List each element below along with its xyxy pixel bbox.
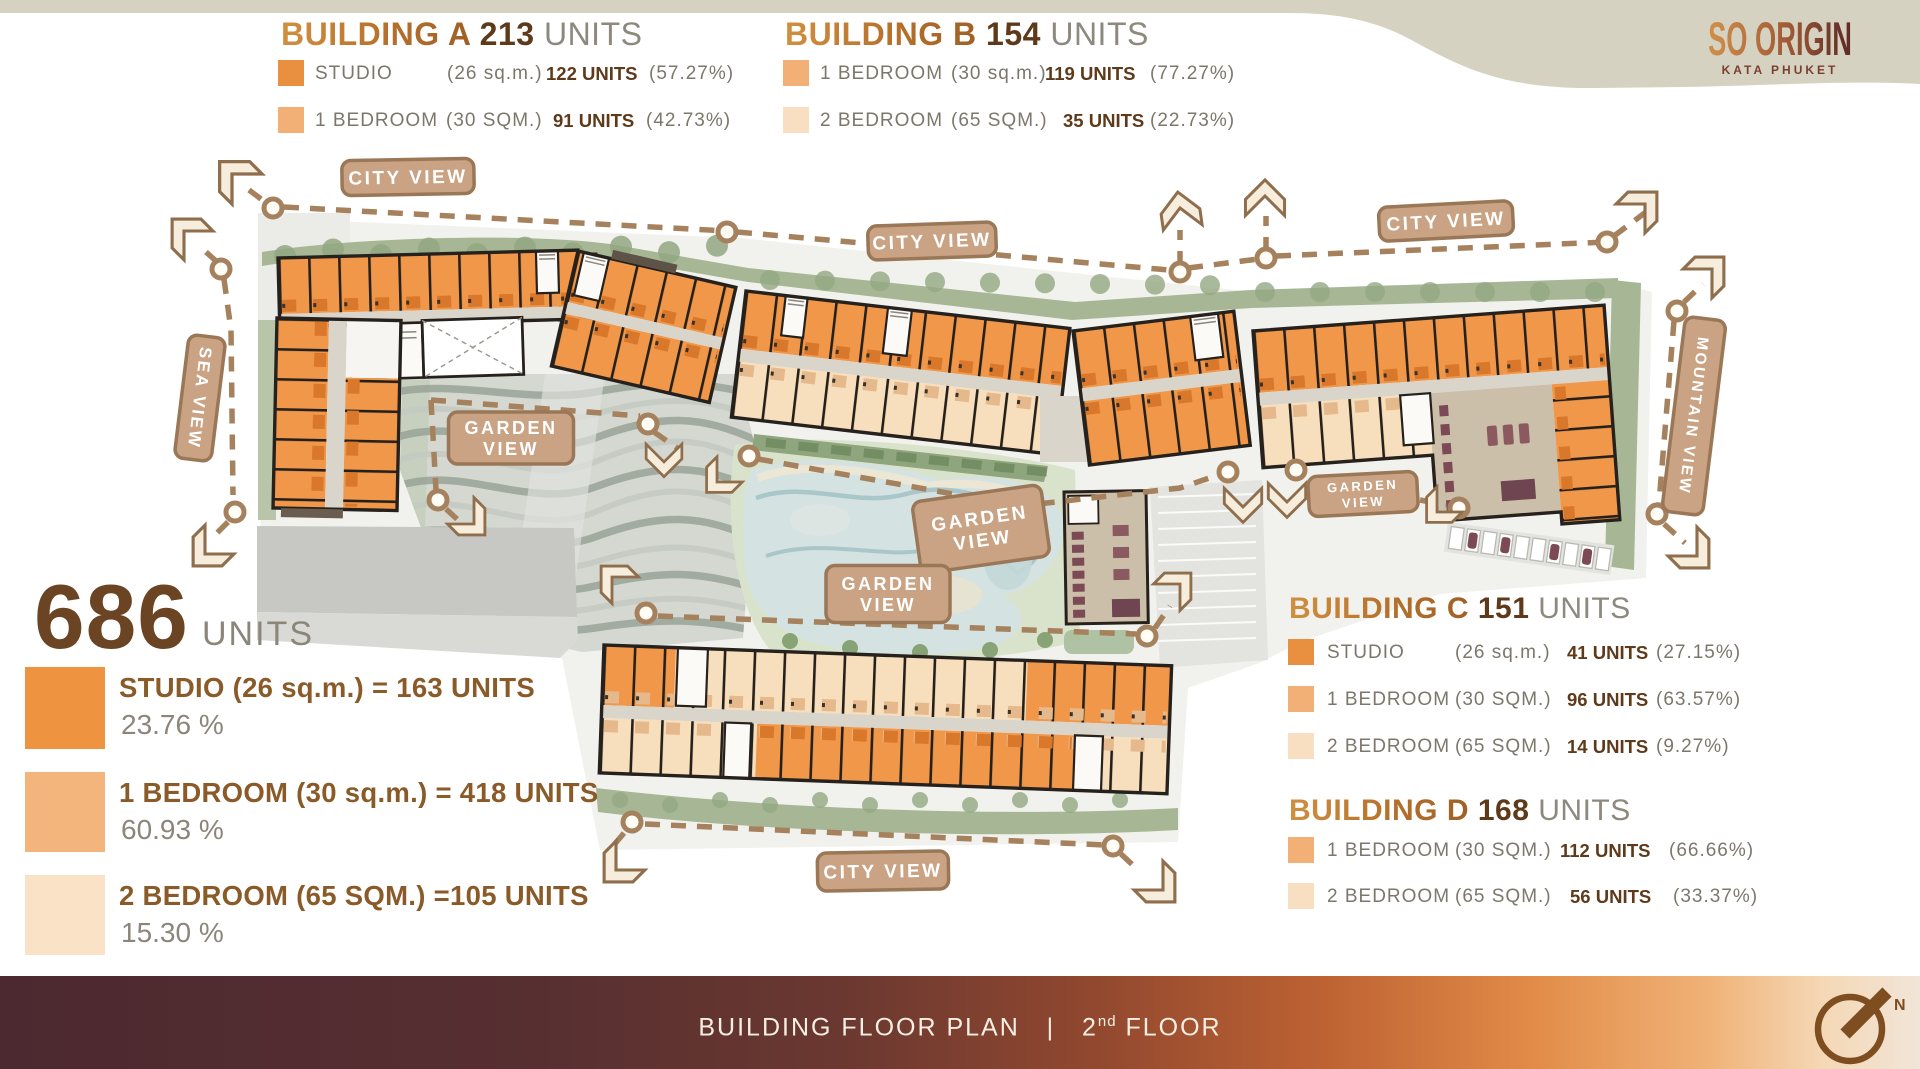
svg-text:CITY VIEW: CITY VIEW bbox=[823, 861, 943, 884]
svg-text:GARDEN: GARDEN bbox=[464, 418, 557, 438]
svg-text:VIEW: VIEW bbox=[1341, 493, 1385, 510]
svg-text:VIEW: VIEW bbox=[483, 439, 539, 459]
svg-text:VIEW: VIEW bbox=[860, 595, 916, 615]
svg-text:CITY VIEW: CITY VIEW bbox=[348, 167, 468, 190]
svg-text:GARDEN: GARDEN bbox=[841, 574, 934, 594]
svg-text:CITY VIEW: CITY VIEW bbox=[872, 230, 992, 255]
